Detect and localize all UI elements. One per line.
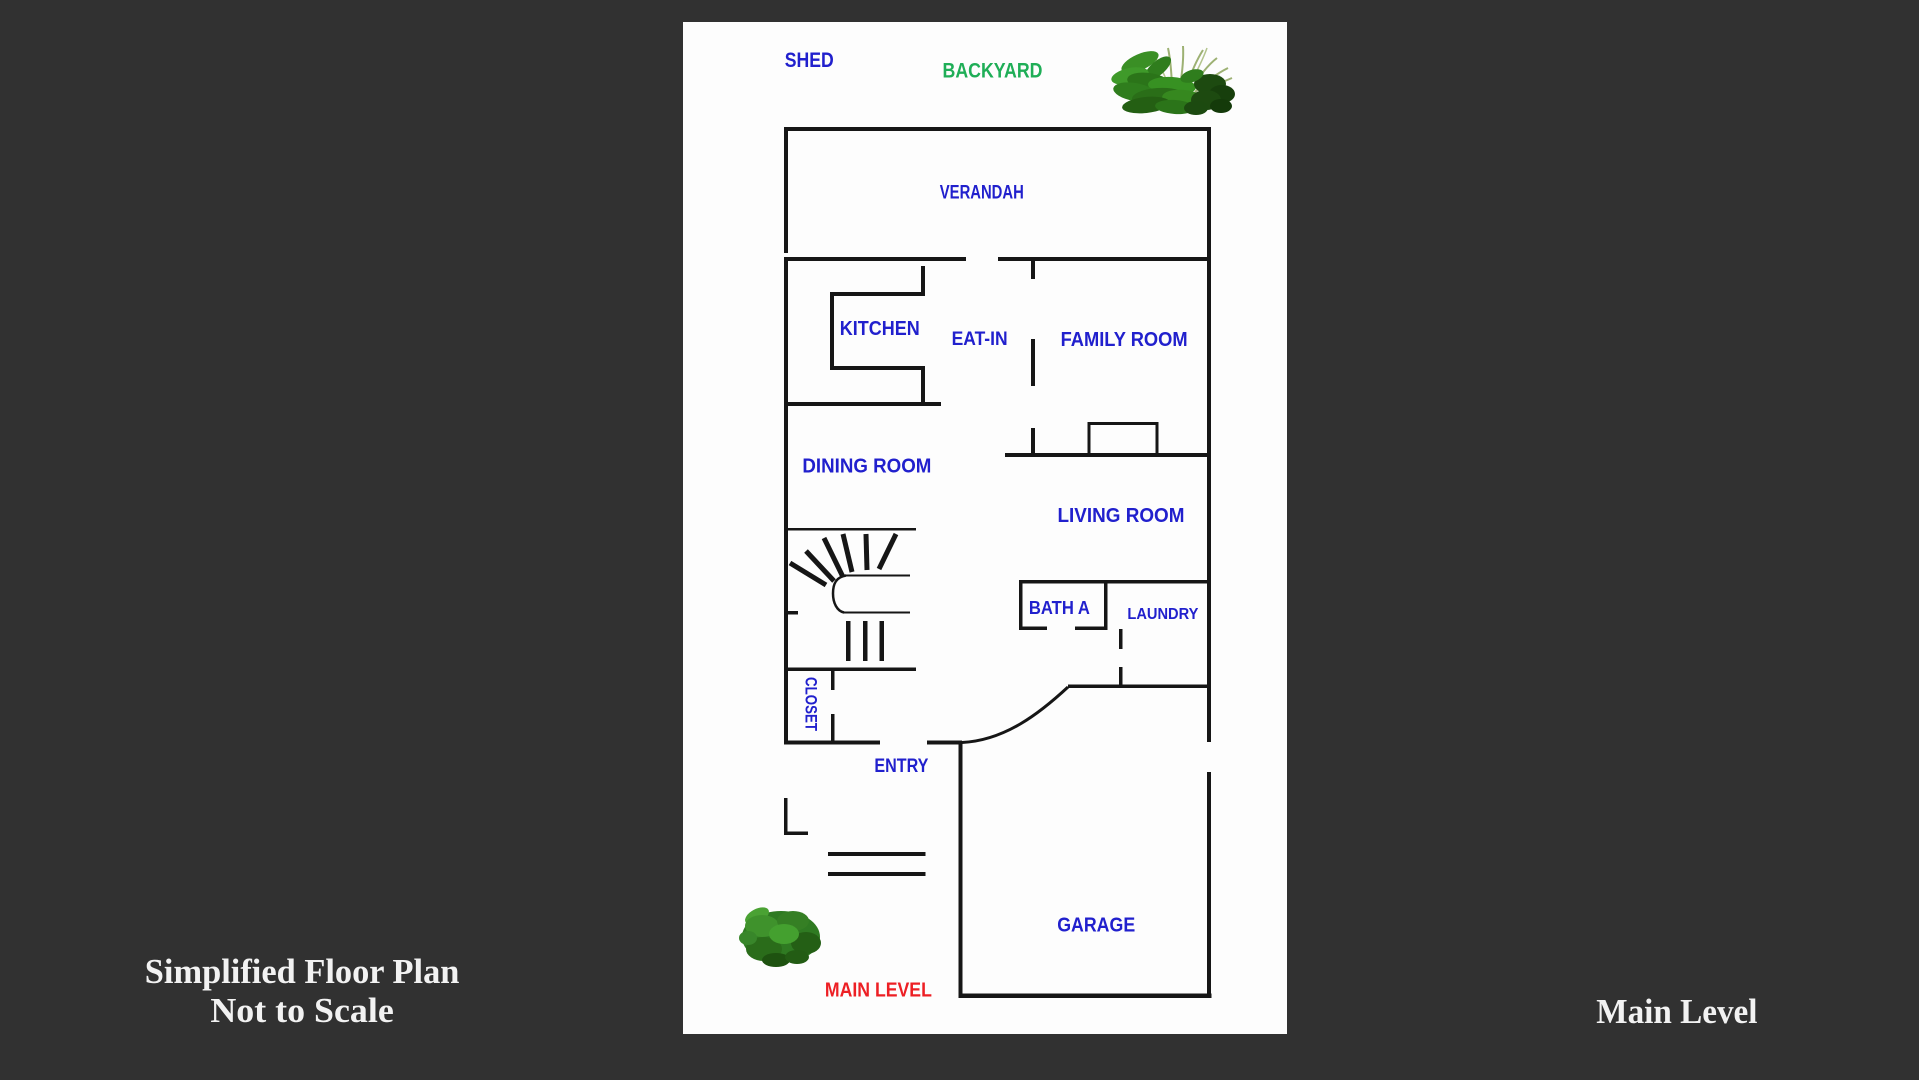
svg-text:Main Level: Main Level [1596,992,1757,1031]
svg-text:LIVING ROOM: LIVING ROOM [1058,505,1185,527]
svg-text:LAUNDRY: LAUNDRY [1127,606,1198,623]
svg-text:CLOSET: CLOSET [802,677,821,731]
svg-text:BACKYARD: BACKYARD [943,60,1043,83]
svg-text:GARAGE: GARAGE [1057,915,1135,937]
svg-text:Not to Scale: Not to Scale [210,991,393,1030]
svg-text:ENTRY: ENTRY [874,756,928,777]
svg-text:BATH A: BATH A [1029,598,1090,618]
svg-text:EAT-IN: EAT-IN [952,329,1008,350]
svg-text:Simplified Floor Plan: Simplified Floor Plan [145,952,460,991]
svg-text:SHED: SHED [785,49,834,72]
svg-text:DINING ROOM: DINING ROOM [802,455,931,477]
svg-text:VERANDAH: VERANDAH [940,183,1024,204]
svg-text:FAMILY ROOM: FAMILY ROOM [1061,329,1188,351]
svg-text:MAIN LEVEL: MAIN LEVEL [825,980,932,1002]
svg-text:KITCHEN: KITCHEN [840,318,920,340]
